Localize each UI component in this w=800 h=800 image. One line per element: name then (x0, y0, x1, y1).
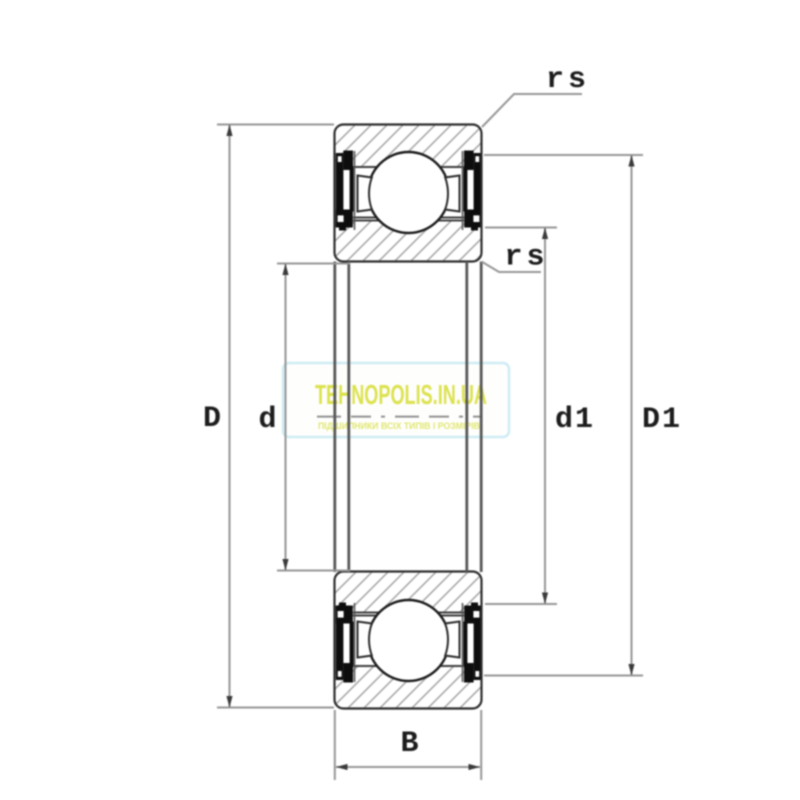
svg-text:rs: rs (505, 241, 549, 275)
svg-text:D: D (203, 402, 221, 436)
svg-text:ПІДШИПНИКИ ВСІХ ТИПІВ І РОЗМІР: ПІДШИПНИКИ ВСІХ ТИПІВ І РОЗМІРІВ (318, 421, 480, 431)
svg-text:TEHNOPOLIS.IN.UA: TEHNOPOLIS.IN.UA (315, 379, 487, 410)
svg-text:B: B (400, 727, 418, 761)
svg-text:rs: rs (546, 63, 590, 97)
svg-text:d: d (258, 403, 276, 437)
svg-text:d1: d1 (555, 403, 595, 437)
svg-text:D1: D1 (642, 403, 682, 437)
